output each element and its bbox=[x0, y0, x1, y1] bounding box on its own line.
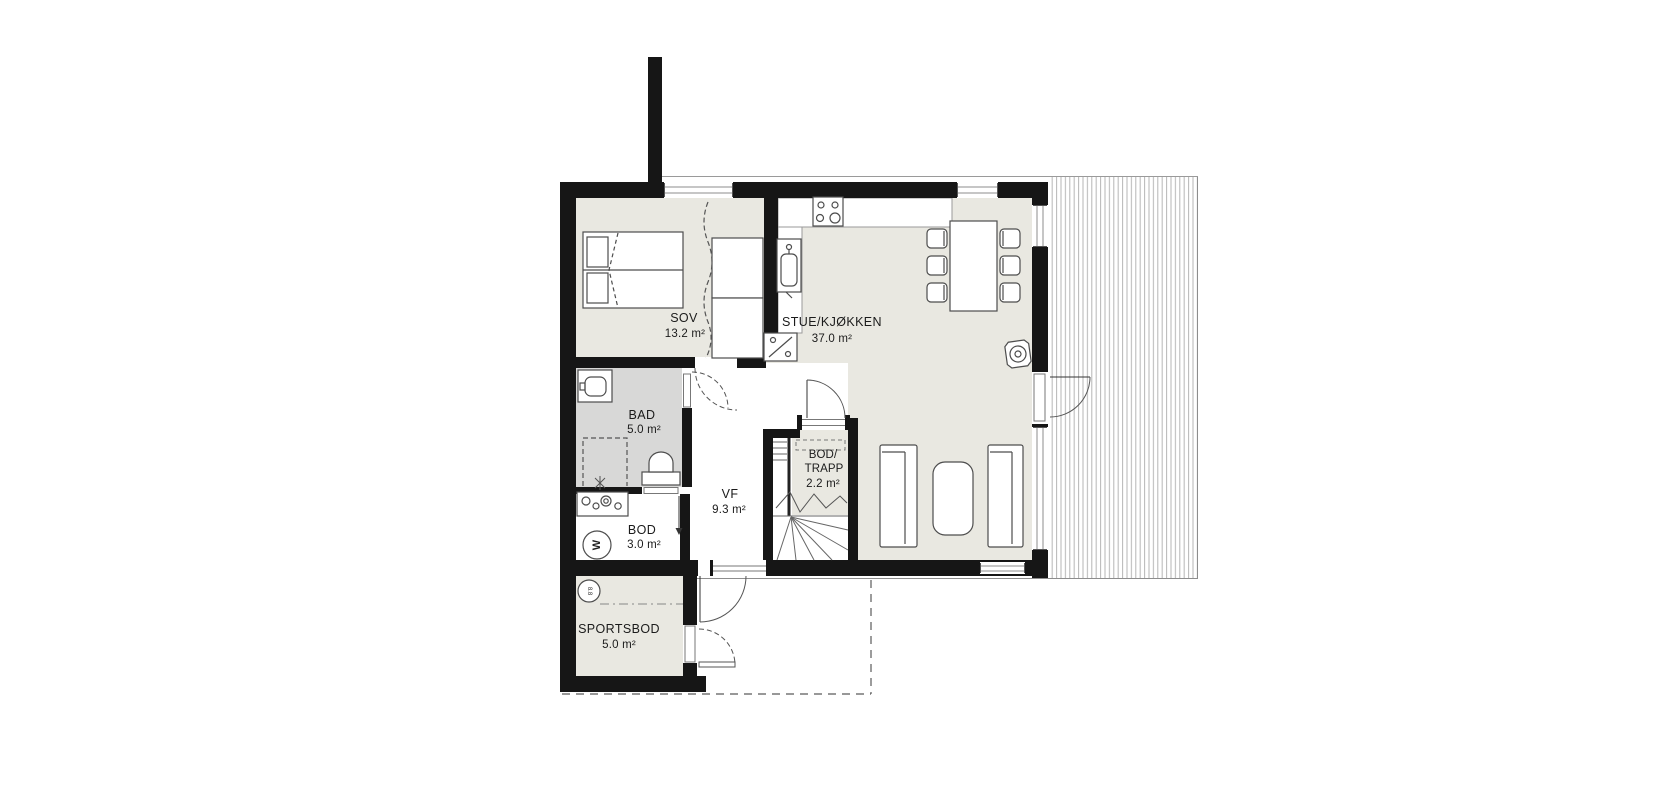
window-stue-bottom bbox=[980, 562, 1025, 574]
washbasin-icon bbox=[578, 370, 612, 402]
room-vf-floor bbox=[692, 368, 763, 560]
room-area-sov: 13.2 m² bbox=[665, 328, 705, 341]
room-label-bod-trapp: BOD/ bbox=[809, 449, 838, 462]
double-bed-icon bbox=[583, 232, 683, 308]
sofa-right bbox=[988, 445, 1023, 547]
drain-badge-label: 8.8 bbox=[586, 587, 592, 595]
room-label-stue: STUE/KJØKKEN bbox=[782, 316, 882, 329]
wall-stair-left bbox=[763, 429, 773, 560]
floor-plan-drawing bbox=[0, 0, 1670, 800]
washing-machine-label: W bbox=[591, 540, 603, 550]
laundry-counter-icon bbox=[577, 492, 628, 516]
room-label-sportsbod: SPORTSBOD bbox=[578, 623, 660, 636]
window-stue-right-lower bbox=[1032, 427, 1048, 550]
kitchen-sink-icon bbox=[777, 239, 801, 298]
room-area-bod: 3.0 m² bbox=[627, 539, 661, 552]
stove-icon bbox=[813, 197, 843, 226]
room-label-bod-trapp2: TRAPP bbox=[805, 463, 844, 476]
sportsbod-door bbox=[683, 625, 735, 667]
kitchen-counter-top bbox=[778, 198, 952, 227]
room-label-bod: BOD bbox=[628, 524, 656, 537]
wall-stub-top bbox=[648, 57, 662, 198]
wall-bottom-main bbox=[560, 560, 1048, 576]
wall-left bbox=[560, 182, 576, 692]
wall-stair-right bbox=[848, 418, 858, 560]
wood-stove-icon bbox=[1004, 339, 1031, 368]
coffee-table-icon bbox=[933, 462, 973, 535]
floor-plan: SOV 13.2 m² STUE/KJØKKEN 37.0 m² BAD 5.0… bbox=[0, 0, 1670, 800]
room-area-stue: 37.0 m² bbox=[812, 333, 852, 346]
entrance-door bbox=[694, 560, 766, 622]
wall-stair-top bbox=[763, 429, 800, 438]
wall-sov-right bbox=[737, 357, 766, 368]
wall-bad-east bbox=[682, 408, 692, 487]
room-area-bod-trapp: 2.2 m² bbox=[806, 478, 840, 491]
room-area-bad: 5.0 m² bbox=[627, 424, 661, 437]
wall-sov-bad-left bbox=[576, 357, 695, 368]
wall-kitchen bbox=[764, 198, 778, 333]
room-area-sportsbod: 5.0 m² bbox=[602, 639, 636, 652]
room-label-bad: BAD bbox=[629, 409, 656, 422]
window-stue-top bbox=[957, 182, 998, 198]
room-label-vf: VF bbox=[722, 488, 739, 501]
wall-sportsbod-bottom bbox=[560, 676, 706, 692]
window-sov bbox=[664, 182, 733, 198]
sofa-left bbox=[880, 445, 917, 547]
dining-table-icon bbox=[950, 221, 997, 311]
room-label-sov: SOV bbox=[670, 312, 698, 325]
window-stue-right-upper bbox=[1032, 205, 1048, 247]
tall-cabinet-icon bbox=[764, 333, 797, 361]
wall-bod-east bbox=[680, 494, 690, 560]
room-area-vf: 9.3 m² bbox=[712, 504, 746, 517]
